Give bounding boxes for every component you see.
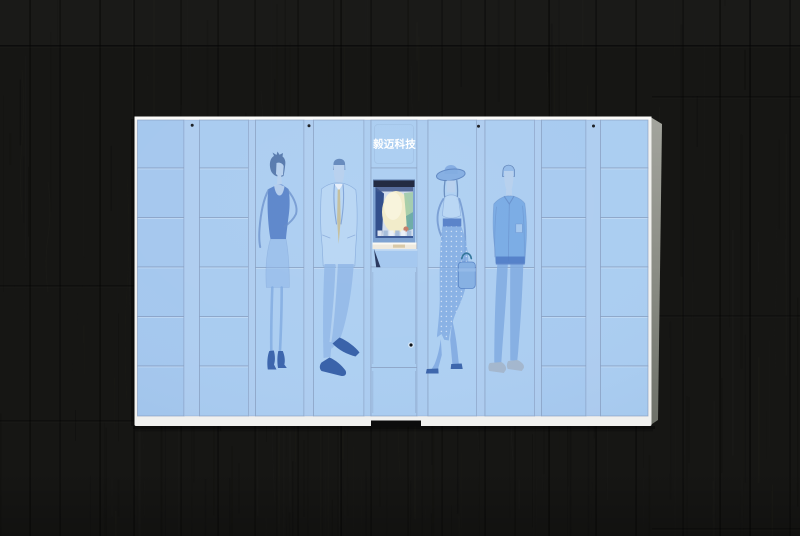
svg-text:毅迈科技: 毅迈科技 bbox=[372, 138, 416, 151]
